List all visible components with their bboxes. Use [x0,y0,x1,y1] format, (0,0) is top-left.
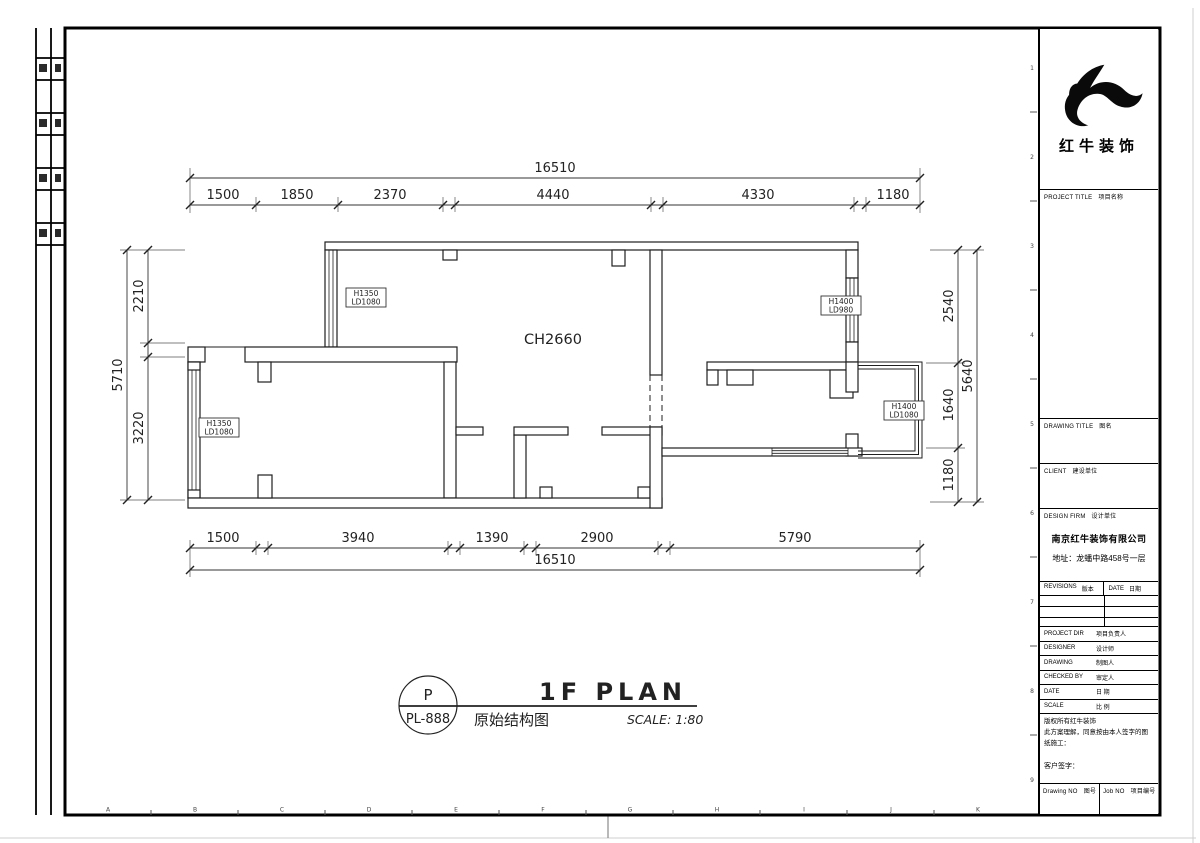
window-label: LD1080 [351,298,380,307]
drawing-title-label-zh: 图名 [1099,421,1111,430]
revisions-label-en: REVISIONS [1044,584,1077,593]
pier [612,250,625,266]
dim-bottom-seg: 1390 [475,531,508,546]
walls [188,242,862,508]
plan-title: 1F PLAN [539,678,687,706]
window-band-left [188,362,200,498]
dim-bottom-seg: 3940 [341,531,374,546]
wall-stub [514,427,568,435]
dim-bottom-seg: 1500 [206,531,239,546]
scale-label-en: SCALE [1044,703,1092,709]
dim-left-total: 5710 [111,358,126,391]
plan-subtitle: 原始结构图 [474,711,549,729]
firm-address: 地址：龙蟠中路458号一层 [1044,553,1154,564]
revisions-empty-row [1040,596,1158,607]
project-dir-label-en: PROJECT DIR [1044,631,1092,637]
date-col-label-zh: 日期 [1129,584,1141,593]
dim-bottom-seg: 2900 [580,531,613,546]
client-signature-label: 客户签字： [1044,761,1154,773]
project-dir-label-zh: 项目负责人 [1096,629,1126,638]
grid-letter: H [715,807,720,814]
design-firm-label-en: DESIGN FIRM [1044,514,1086,520]
grid-letter: C [280,807,284,814]
grid-number: 8 [1030,688,1034,695]
window-pier [188,490,200,498]
dim-top-total: 16510 [534,161,575,176]
job-no-label-en: Job NO [1103,789,1125,795]
title-block: 红牛装饰 PROJECT TITLE 项目名称 DRAWING TITLE 图名… [1038,29,1158,814]
grid-letter: A [106,807,111,814]
bay-pier-top [846,362,858,392]
design-firm-section: DESIGN FIRM 设计单位 南京红牛装饰有限公司 地址：龙蟠中路458号一… [1040,509,1158,582]
wall-bottom-right [662,448,862,456]
wall-left-top-end [188,347,205,362]
client-section: CLIENT 建设单位 [1040,464,1158,509]
dim-left-seg: 3220 [132,411,147,444]
checked-by-row: CHECKED BY 审定人 [1040,671,1158,686]
dashed-opening [650,375,662,427]
drawing-tag-letter: P [423,686,432,704]
grid-number: 6 [1030,510,1034,517]
grid-number: 4 [1030,332,1034,339]
plan-scale: SCALE: 1:80 [627,712,703,727]
pier [443,250,457,260]
checked-by-label-en: CHECKED BY [1044,674,1092,680]
wall-notch [727,370,753,385]
project-dir-row: PROJECT DIR 项目负责人 [1040,627,1158,642]
dim-right-seg: 1640 [942,388,957,421]
dim-top-seg: 4330 [741,188,774,203]
grid-letter: E [454,807,458,814]
grid-ticks [151,112,1037,815]
revisions-table: REVISIONS 版本 DATE 日期 [1040,582,1158,627]
brand-name: 红牛装饰 [1059,135,1139,156]
drawing-no-label-zh: 图号 [1084,786,1096,795]
door-jamb [540,487,552,498]
grid-letter: F [541,807,545,814]
wall-left-room-top [245,347,457,362]
grid-letter: G [628,807,633,814]
window-label: LD1080 [204,428,233,437]
date-col-label-en: DATE [1108,586,1124,592]
grid-number: 7 [1030,599,1034,606]
wall-right-upper [846,250,858,278]
floor-plan-canvas: H1350 LD1080 H1350 LD1080 H1400 LD980 H1… [0,0,1200,843]
grid-letter: B [193,807,197,814]
drawing-no-label-en: Drawing NO [1043,789,1078,795]
scale-label-zh: 比 例 [1096,702,1110,711]
grid-letter: J [889,807,892,814]
dim-left-seg: 2210 [132,279,147,312]
wall-stub [456,427,483,435]
grid-letter: K [976,807,981,814]
job-no-label-zh: 项目编号 [1131,786,1156,795]
scale-row: SCALE 比 例 [1040,700,1158,715]
drawing-title-label-en: DRAWING TITLE [1044,424,1093,430]
grid-number: 3 [1030,243,1034,250]
logo-section: 红牛装饰 [1040,29,1158,190]
date-label-zh: 日 期 [1096,687,1110,696]
grid-number: 2 [1030,154,1034,161]
revisions-empty-row [1040,618,1158,627]
dim-right-seg: 1180 [942,458,957,491]
dim-right-seg: 2540 [942,289,957,322]
door-jamb [638,487,650,498]
window-label: LD1080 [889,411,918,420]
designer-label-zh: 设计师 [1096,644,1114,653]
designer-row: DESIGNER 设计师 [1040,642,1158,657]
grid-letter: I [803,807,805,814]
client-label-en: CLIENT [1044,469,1067,475]
drawing-label-zh: 制图人 [1096,658,1114,667]
wall-top [325,242,858,250]
grid-number: 9 [1030,777,1034,784]
grid-number: 5 [1030,421,1034,428]
firm-name: 南京红牛装饰有限公司 [1044,532,1154,545]
client-label-zh: 建设单位 [1073,466,1098,475]
number-section: Drawing NO 图号 Job NO 项目编号 [1040,784,1158,814]
date-label-en: DATE [1044,689,1092,695]
pier [258,475,272,498]
door-jamb [258,362,271,382]
dim-top-seg: 1850 [280,188,313,203]
drawing-title-section: DRAWING TITLE 图名 [1040,419,1158,464]
revisions-header: REVISIONS 版本 DATE 日期 [1040,582,1158,596]
signature-cell-marks [39,64,61,237]
project-title-label-en: PROJECT TITLE [1044,195,1092,201]
window-pier [188,362,200,370]
date-row: DATE 日 期 [1040,685,1158,700]
dim-bottom-seg: 5790 [778,531,811,546]
project-title-section: PROJECT TITLE 项目名称 [1040,190,1158,419]
revisions-label-zh: 版本 [1082,584,1094,593]
agreement-note: 此方案理解，同意按由本人签字的图纸施工： [1044,727,1154,749]
wall-right-room-bottom [707,362,853,370]
designer-label-en: DESIGNER [1044,645,1092,651]
design-firm-label-zh: 设计单位 [1092,511,1117,520]
grid-number: 1 [1030,65,1034,72]
revisions-empty-row [1040,607,1158,618]
drawing-row: DRAWING 制图人 [1040,656,1158,671]
drawing-tag-code: PL-888 [406,712,450,727]
drawing-sheet: H1350 LD1080 H1350 LD1080 H1400 LD980 H1… [0,0,1200,843]
dim-top-seg: 1500 [206,188,239,203]
project-title-label-zh: 项目名称 [1098,192,1123,201]
window-label: LD980 [829,306,853,315]
dim-top-seg: 4440 [536,188,569,203]
checked-by-label-zh: 审定人 [1096,673,1114,682]
dim-right-total: 5640 [961,359,976,392]
door-jamb [707,370,718,385]
wall-partition-v3-lower [650,427,662,508]
ceiling-height-label: CH2660 [524,332,582,348]
notes-section: 版权所有红牛装饰 此方案理解，同意按由本人签字的图纸施工： 客户签字： [1040,714,1158,784]
dim-bottom-total: 16510 [534,553,575,568]
wall-right-mid [846,342,858,362]
wall-partition-v1 [444,362,456,498]
drawing-label-en: DRAWING [1044,660,1092,666]
dim-top-seg: 2370 [373,188,406,203]
wall-partition-v3-upper [650,250,662,375]
window-band-upper-left [325,250,337,347]
grid-letter: D [367,807,372,814]
brand-logo-icon [1053,63,1145,127]
wall-partition-v2 [514,435,526,498]
signature-strip [36,28,65,815]
dim-top-seg: 1180 [876,188,909,203]
copyright-note: 版权所有红牛装饰 [1044,716,1154,727]
wall-bottom-left [188,498,662,508]
